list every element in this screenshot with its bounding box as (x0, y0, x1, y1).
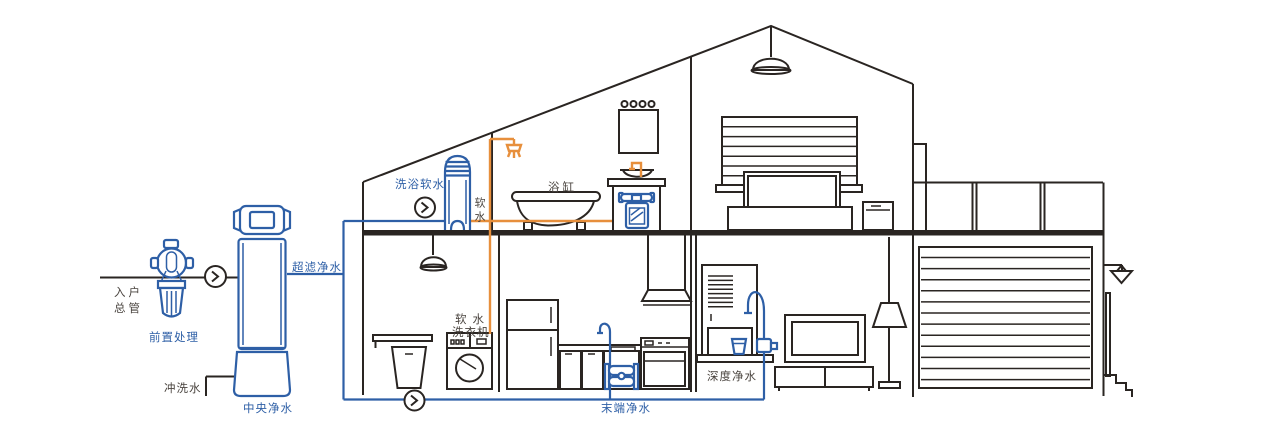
label-soft-washer-line1: 软水 (455, 312, 490, 326)
tv-stand (775, 367, 873, 391)
label-soft-water-vertical: 软水 (473, 196, 486, 225)
downspout (1106, 293, 1110, 376)
label-bath-softener: 洗浴软水 (395, 177, 445, 191)
label-ultrafiltration: 超滤净水 (292, 260, 342, 274)
washing-machine (447, 333, 492, 389)
label-pre-treatment: 前置处理 (149, 330, 199, 344)
pendant-lamp-icon (421, 236, 447, 271)
floor-lamp-icon (873, 237, 906, 388)
nightstand (863, 202, 893, 230)
label-inlet-main-line1: 入户 (114, 285, 143, 299)
range-hood (642, 236, 691, 306)
water-cup-icon (732, 339, 746, 354)
label-inlet-main-line2: 总管 (114, 301, 143, 315)
vanity-sink-bowl (620, 170, 654, 177)
flow-arrow-icon (405, 391, 425, 411)
label-soft-washer-line2: 洗衣机 (452, 325, 490, 339)
bedroom (716, 26, 893, 230)
bathtub (512, 192, 600, 230)
countertop (557, 345, 641, 351)
entry-steps (1104, 375, 1132, 397)
terrace-rail-posts (973, 183, 1045, 231)
bed (728, 172, 852, 230)
label-terminal-purifier: 末端净水 (601, 401, 651, 415)
kitchen-faucet-icon (597, 324, 610, 346)
fridge (507, 300, 558, 389)
label-bathtub: 浴缸 (548, 180, 577, 194)
label-flush-water: 冲洗水 (164, 381, 202, 395)
bath-softener-device (445, 156, 470, 230)
label-central-purifier: 中央净水 (243, 401, 293, 415)
flow-arrow-icon (415, 198, 435, 218)
under-vanity-heater-device (619, 193, 654, 228)
pendant-lamp-icon (752, 26, 791, 74)
kitchen (507, 236, 691, 390)
dispenser-counter (697, 355, 773, 362)
flow-arrow-icon (205, 266, 226, 287)
terminal-purifier-device (605, 364, 638, 389)
vanity-mirror (619, 101, 658, 153)
central-purifier-device (234, 206, 290, 396)
stove-oven (641, 338, 689, 389)
shower-head-icon (507, 145, 521, 158)
laundry-basin (392, 347, 426, 388)
whole-house-water-system-diagram: 入户 总管 前置处理 中央净水 冲洗水 超滤净水 洗浴软水 软水 浴缸 软水 洗… (0, 0, 1280, 434)
tv (785, 315, 865, 362)
roof-outline (363, 26, 913, 182)
laundry-room (373, 236, 492, 390)
diagram-canvas: 入户 总管 前置处理 中央净水 冲洗水 超滤净水 洗浴软水 软水 浴缸 软水 洗… (0, 0, 1280, 434)
living-room (775, 237, 906, 391)
label-deep-purifier: 深度净水 (707, 369, 757, 383)
outdoor-faucet-icon (1104, 265, 1132, 283)
garage-door (919, 247, 1092, 388)
